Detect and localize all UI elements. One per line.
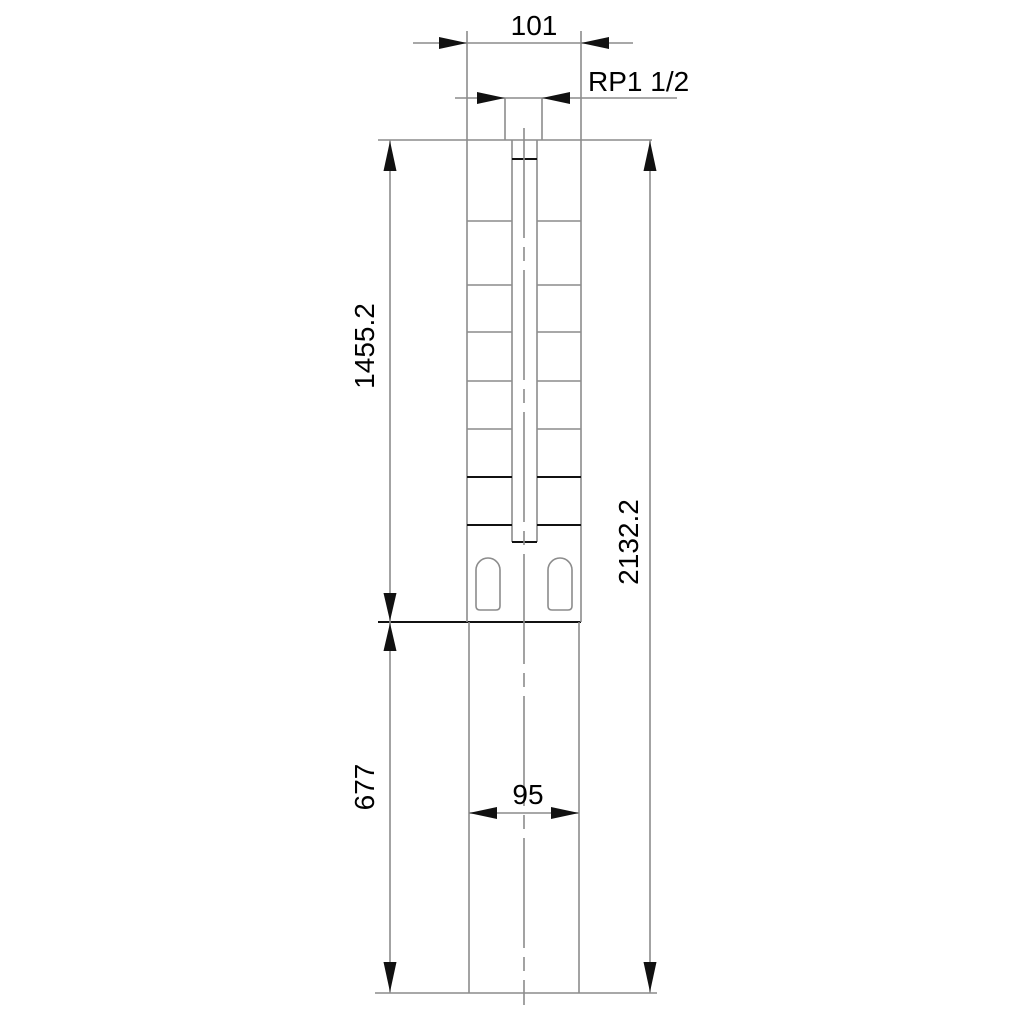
dimension-label-motor-width: 95	[512, 779, 543, 810]
arrow-up-icon	[644, 141, 657, 171]
dimension-label-lower-length: 677	[349, 764, 380, 811]
dimension-left-chain: 1455.2 677	[349, 140, 397, 993]
dimension-label-connection: RP1 1/2	[588, 66, 689, 97]
dimension-connection: RP1 1/2	[455, 66, 689, 140]
arrow-right-icon	[477, 92, 505, 104]
arrow-left-icon	[581, 37, 609, 49]
intake-slot	[548, 558, 572, 610]
arrow-left-icon	[542, 92, 570, 104]
dimension-label-top-width: 101	[511, 10, 558, 41]
dimension-label-upper-length: 1455.2	[349, 303, 380, 389]
arrow-up-icon	[384, 141, 397, 171]
arrow-down-icon	[644, 962, 657, 992]
pump-dimensional-drawing: 101 RP1 1/2	[0, 0, 1024, 1024]
intake-slot	[476, 558, 500, 610]
arrow-left-icon	[469, 807, 497, 819]
dimension-label-total-length: 2132.2	[613, 499, 644, 585]
dimension-motor-width: 95	[469, 779, 579, 819]
arrow-right-icon	[439, 37, 467, 49]
dimension-total-length: 2132.2	[613, 140, 657, 993]
arrow-right-icon	[551, 807, 579, 819]
arrow-down-icon	[384, 962, 397, 992]
arrow-down-icon	[384, 593, 397, 621]
drawing-canvas: 101 RP1 1/2	[0, 0, 1024, 1024]
arrow-up-icon	[384, 623, 397, 651]
